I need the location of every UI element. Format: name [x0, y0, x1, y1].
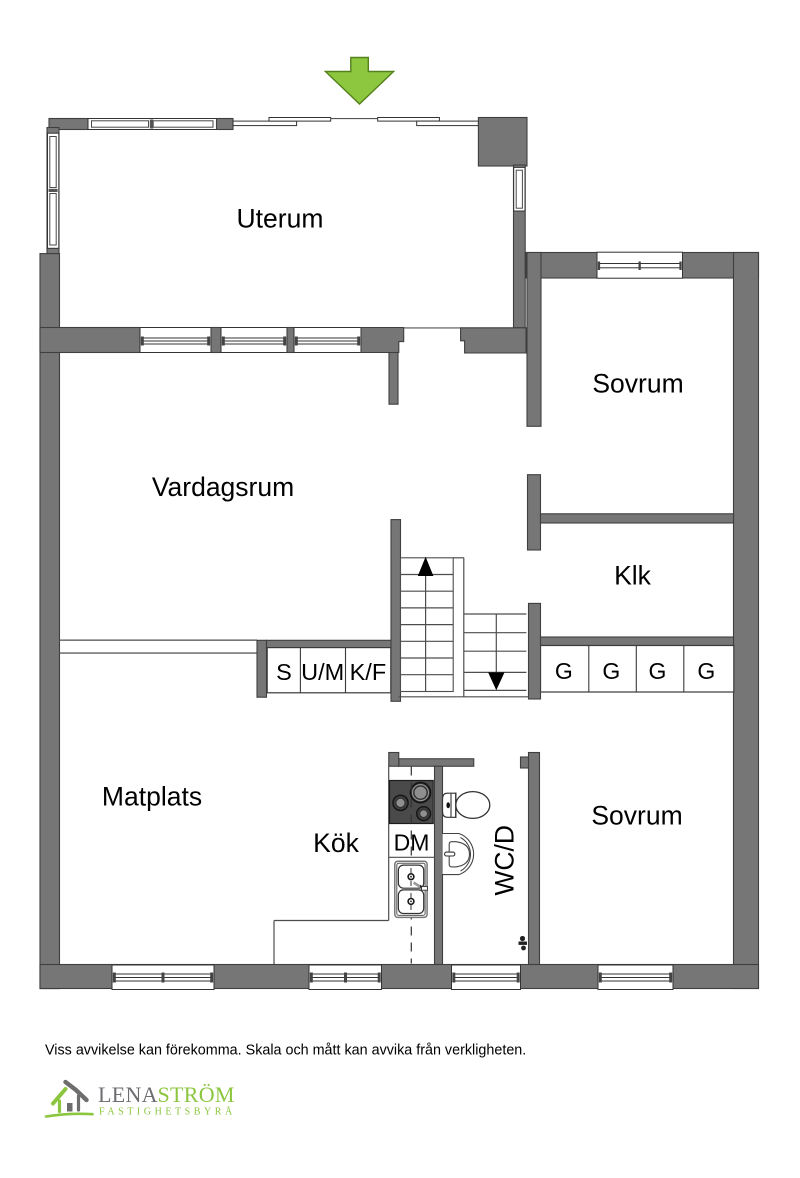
svg-text:DM: DM [394, 830, 430, 856]
svg-text:Viss avvikelse kan förekomma.: Viss avvikelse kan förekomma. Skala och … [45, 1043, 526, 1059]
svg-text:Vardagsrum: Vardagsrum [152, 472, 294, 502]
svg-text:Uterum: Uterum [237, 203, 324, 233]
svg-text:G: G [602, 658, 620, 684]
svg-text:FASTIGHETSBYRÅ: FASTIGHETSBYRÅ [99, 1106, 236, 1118]
svg-text:G: G [649, 658, 667, 684]
svg-text:U/M: U/M [301, 659, 344, 685]
svg-text:G: G [555, 658, 573, 684]
svg-text:LENA: LENA [98, 1082, 158, 1107]
svg-text:S: S [276, 659, 292, 685]
svg-text:Klk: Klk [614, 561, 652, 591]
svg-text:WC/D: WC/D [490, 825, 520, 896]
svg-text:Kök: Kök [313, 828, 359, 858]
svg-text:Sovrum: Sovrum [591, 800, 682, 830]
svg-text:K/F: K/F [350, 659, 387, 685]
svg-text:Matplats: Matplats [102, 782, 202, 812]
svg-text:STRÖM: STRÖM [158, 1082, 235, 1107]
svg-text:G: G [697, 658, 715, 684]
svg-text:Sovrum: Sovrum [592, 369, 683, 399]
